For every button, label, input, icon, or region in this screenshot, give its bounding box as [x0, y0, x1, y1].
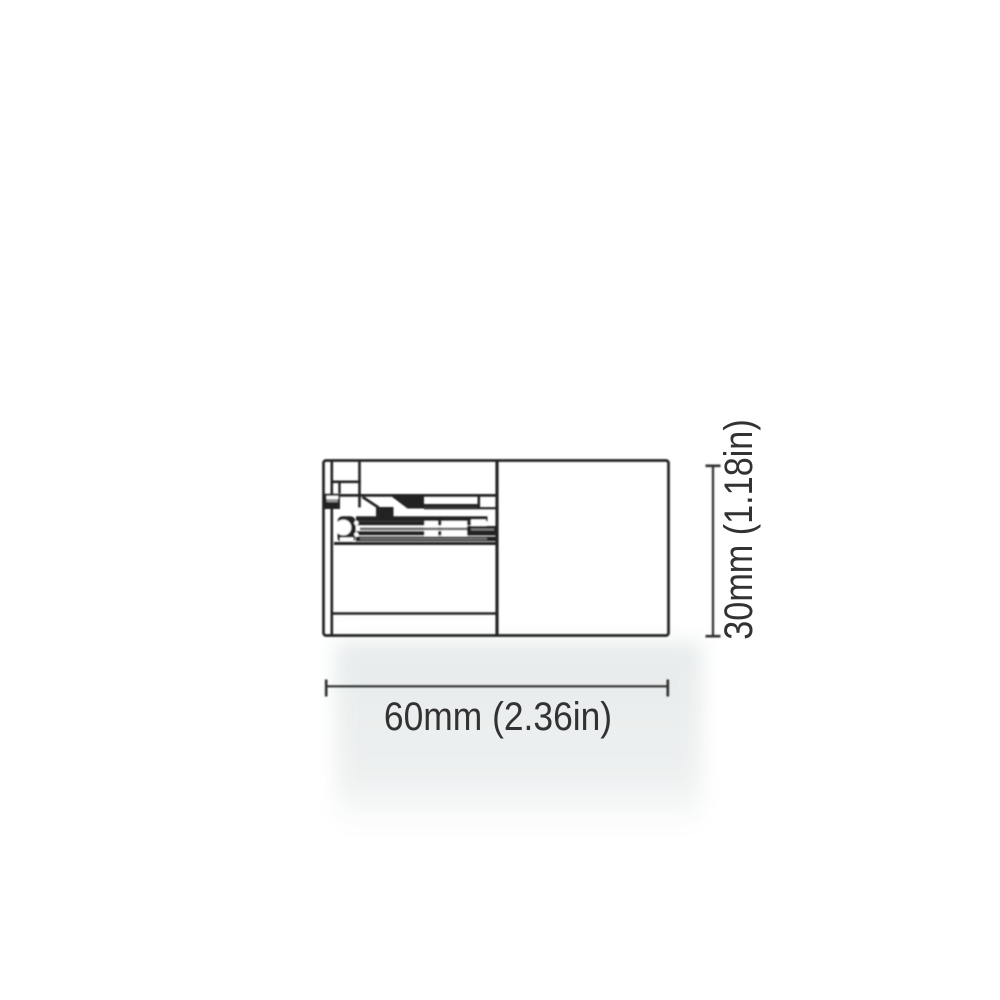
svg-text:60mm (2.36in): 60mm (2.36in)	[384, 695, 612, 739]
svg-text:30mm (1.18in): 30mm (1.18in)	[715, 419, 760, 639]
